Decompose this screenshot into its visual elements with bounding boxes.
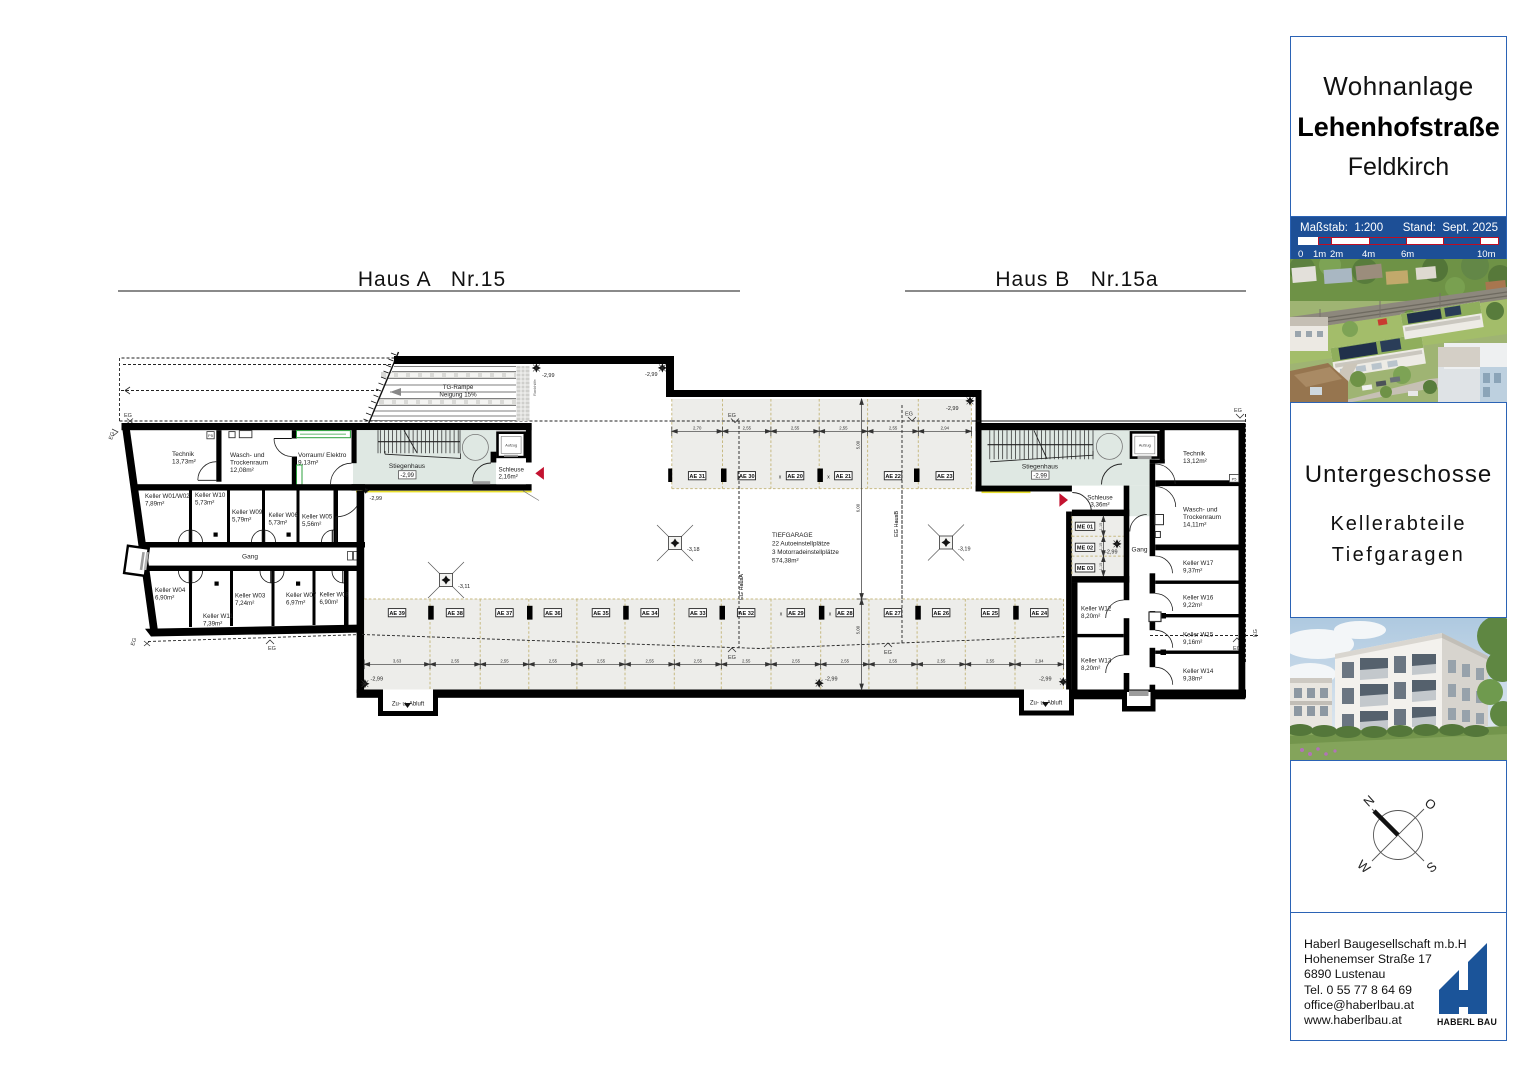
svg-text:Haus B Nr.15a: Haus B Nr.15a (995, 268, 1158, 291)
svg-text:2,55: 2,55 (792, 659, 801, 664)
svg-text:Keller W06: Keller W06 (269, 513, 299, 519)
svg-text:2,55: 2,55 (743, 426, 752, 431)
svg-text:-2,99: -2,99 (645, 372, 658, 378)
svg-text:14,11m²: 14,11m² (1183, 522, 1207, 529)
svg-text:AE 27: AE 27 (885, 611, 901, 617)
svg-text:7,89m²: 7,89m² (145, 501, 164, 508)
svg-text:12,08m²: 12,08m² (230, 467, 255, 474)
svg-text:Neigung 15%: Neigung 15% (439, 392, 477, 399)
svg-text:1,15: 1,15 (1099, 563, 1103, 570)
svg-text:1,15: 1,15 (1099, 523, 1103, 530)
svg-text:2,55: 2,55 (451, 659, 460, 664)
svg-text:Keller W09: Keller W09 (232, 509, 263, 516)
svg-text:-3,18: -3,18 (687, 547, 700, 553)
svg-text:KG: KG (1253, 629, 1259, 637)
svg-text:Keller W14: Keller W14 (1183, 668, 1214, 675)
svg-text:22 Autoeinstellplätze: 22 Autoeinstellplätze (772, 541, 830, 548)
svg-text:9,16m²: 9,16m² (1183, 639, 1202, 646)
svg-text:AE 22: AE 22 (885, 474, 901, 480)
svg-text:3 Motorradeinstellplätze: 3 Motorradeinstellplätze (772, 549, 839, 556)
svg-text:Rankhilfe: Rankhilfe (532, 379, 537, 396)
svg-text:N: N (1360, 792, 1377, 809)
svg-text:AE 25: AE 25 (982, 611, 998, 617)
svg-text:2,55: 2,55 (937, 659, 946, 664)
svg-text:7,24m²: 7,24m² (235, 600, 254, 607)
svg-text:Schleuse: Schleuse (499, 467, 525, 474)
svg-text:AE 26: AE 26 (933, 611, 949, 617)
svg-text:AE 34: AE 34 (642, 611, 658, 617)
svg-text:AE 39: AE 39 (389, 611, 405, 617)
svg-text:5,00: 5,00 (856, 440, 861, 449)
svg-text:-2,99: -2,99 (542, 373, 555, 379)
svg-text:EG: EG (728, 413, 736, 419)
svg-text:Wasch- und: Wasch- und (230, 452, 265, 459)
svg-text:6,90m²: 6,90m² (155, 595, 174, 602)
svg-text:AE 33: AE 33 (690, 611, 706, 617)
svg-text:EG: EG (728, 655, 736, 661)
svg-text:Trockenraum: Trockenraum (1183, 514, 1221, 521)
svg-text:13,12m²: 13,12m² (1183, 458, 1208, 465)
svg-text:Aufzug: Aufzug (505, 443, 517, 447)
svg-text:9,22m²: 9,22m² (1183, 602, 1202, 609)
svg-text:-3,19: -3,19 (958, 547, 971, 553)
svg-text:5,00: 5,00 (856, 625, 861, 634)
svg-text:EG: EG (130, 637, 138, 646)
svg-text:EG: EG (905, 412, 913, 418)
svg-text:2,94: 2,94 (1035, 659, 1044, 664)
svg-text:S: S (1423, 858, 1440, 875)
svg-text:Technik: Technik (172, 451, 195, 458)
svg-text:Keller W16: Keller W16 (1183, 595, 1214, 602)
svg-text:8,20m²: 8,20m² (1081, 665, 1100, 672)
svg-text:AE 30: AE 30 (739, 474, 755, 480)
svg-text:5,56m²: 5,56m² (302, 521, 321, 528)
svg-text:-2,99: -2,99 (825, 677, 838, 683)
svg-text:EG: EG (108, 431, 116, 440)
svg-text:AE 37: AE 37 (497, 611, 513, 617)
svg-text:2,55: 2,55 (500, 659, 509, 664)
svg-text:3,36m²: 3,36m² (1090, 502, 1109, 509)
svg-text:AE 35: AE 35 (593, 611, 609, 617)
svg-text:EG HausA: EG HausA (739, 574, 745, 600)
svg-text:2,55: 2,55 (841, 659, 850, 664)
svg-text:ME 02: ME 02 (1077, 546, 1093, 552)
svg-text:2,55: 2,55 (986, 659, 995, 664)
svg-text:EG HausB: EG HausB (894, 511, 900, 537)
svg-text:2,16m²: 2,16m² (499, 474, 518, 481)
svg-text:5,73m²: 5,73m² (195, 500, 214, 507)
svg-text:HABERL BAU: HABERL BAU (1437, 1017, 1497, 1027)
svg-text:EG: EG (1234, 408, 1242, 414)
svg-text:9,37m²: 9,37m² (1183, 568, 1202, 575)
svg-text:5,79m²: 5,79m² (232, 517, 251, 524)
svg-text:Keller W13: Keller W13 (1081, 658, 1112, 665)
svg-text:O: O (1422, 795, 1439, 813)
svg-text:Stiegenhaus: Stiegenhaus (1022, 464, 1059, 471)
svg-text:Keller W10: Keller W10 (195, 492, 226, 499)
svg-text:Technik: Technik (1183, 451, 1206, 458)
svg-text:5,73m²: 5,73m² (269, 521, 288, 527)
svg-text:13,73m²: 13,73m² (172, 459, 197, 466)
svg-text:AE 36: AE 36 (545, 611, 561, 617)
svg-text:2,55: 2,55 (646, 659, 655, 664)
svg-text:AE 38: AE 38 (447, 611, 463, 617)
svg-text:TIEFGARAGE: TIEFGARAGE (772, 532, 813, 539)
svg-text:Stiegenhaus: Stiegenhaus (389, 463, 426, 470)
svg-text:Keller W07: Keller W07 (286, 592, 317, 599)
svg-text:Schleuse: Schleuse (1087, 495, 1113, 502)
svg-text:6,90m²: 6,90m² (320, 600, 339, 606)
svg-text:-2,99: -2,99 (1105, 550, 1118, 556)
svg-text:AE 31: AE 31 (689, 474, 705, 480)
svg-text:6,97m²: 6,97m² (286, 600, 305, 607)
svg-text:1,15: 1,15 (1099, 543, 1103, 550)
svg-text:6,00: 6,00 (856, 503, 861, 512)
svg-text:ME 03: ME 03 (1077, 566, 1093, 572)
svg-text:7,39m²: 7,39m² (203, 621, 222, 628)
svg-text:9,13m²: 9,13m² (298, 460, 319, 467)
svg-text:Gang: Gang (1132, 547, 1148, 554)
svg-text:P5: P5 (208, 433, 214, 438)
svg-text:Keller W03: Keller W03 (235, 593, 266, 600)
svg-text:2,94: 2,94 (941, 426, 950, 431)
svg-text:Keller W11: Keller W11 (203, 613, 233, 620)
svg-text:-2,99: -2,99 (946, 406, 959, 412)
svg-text:Keller W08: Keller W08 (320, 593, 350, 599)
svg-text:-2,99: -2,99 (1033, 473, 1047, 479)
svg-text:Aufzug: Aufzug (1139, 444, 1151, 448)
svg-text:AE 28: AE 28 (837, 611, 853, 617)
svg-text:-2,99: -2,99 (370, 496, 383, 502)
svg-text:AE 29: AE 29 (788, 611, 804, 617)
svg-text:AE 21: AE 21 (836, 474, 852, 480)
svg-text:2,55: 2,55 (889, 426, 898, 431)
svg-text:2,55: 2,55 (839, 426, 848, 431)
svg-text:8,20m²: 8,20m² (1081, 613, 1100, 620)
svg-text:-3,11: -3,11 (458, 584, 470, 590)
svg-text:9,38m²: 9,38m² (1183, 676, 1202, 683)
svg-text:574,38m²: 574,38m² (772, 558, 799, 565)
svg-text:Wasch- und: Wasch- und (1183, 507, 1218, 514)
svg-text:AE 20: AE 20 (787, 474, 803, 480)
svg-text:EG: EG (124, 413, 132, 419)
svg-text:W: W (1354, 857, 1374, 877)
svg-text:2,55: 2,55 (889, 659, 898, 664)
svg-text:Vorraum/ Elektro: Vorraum/ Elektro (298, 452, 347, 459)
svg-text:AE 32: AE 32 (738, 611, 754, 617)
svg-text:Haus A Nr.15: Haus A Nr.15 (358, 268, 506, 291)
svg-text:P5: P5 (1232, 476, 1238, 481)
svg-text:Keller W04: Keller W04 (155, 587, 186, 594)
svg-text:3,63: 3,63 (393, 659, 402, 664)
svg-text:AE 24: AE 24 (1032, 611, 1048, 617)
svg-text:EG: EG (884, 650, 892, 656)
svg-text:2,55: 2,55 (742, 659, 751, 664)
svg-text:Keller W15: Keller W15 (1183, 632, 1214, 639)
svg-text:2,55: 2,55 (694, 659, 703, 664)
svg-text:ME 01: ME 01 (1077, 525, 1093, 531)
svg-text:Keller W17: Keller W17 (1183, 560, 1214, 567)
svg-text:2,55: 2,55 (597, 659, 606, 664)
svg-text:Gang: Gang (242, 554, 258, 561)
svg-text:-2,99: -2,99 (1039, 677, 1052, 683)
svg-text:TG-Rampe: TG-Rampe (443, 384, 474, 391)
svg-text:2,55: 2,55 (549, 659, 558, 664)
svg-text:Keller W05: Keller W05 (302, 514, 333, 521)
svg-text:AE 23: AE 23 (937, 474, 953, 480)
svg-text:Keller W01/W02: Keller W01/W02 (145, 493, 190, 500)
svg-text:EG: EG (268, 646, 276, 652)
svg-text:2,70: 2,70 (693, 426, 702, 431)
svg-text:Trockenraum: Trockenraum (230, 460, 268, 467)
svg-text:-2,99: -2,99 (371, 677, 384, 683)
svg-text:2,55: 2,55 (791, 426, 800, 431)
svg-text:-2,99: -2,99 (400, 473, 414, 479)
